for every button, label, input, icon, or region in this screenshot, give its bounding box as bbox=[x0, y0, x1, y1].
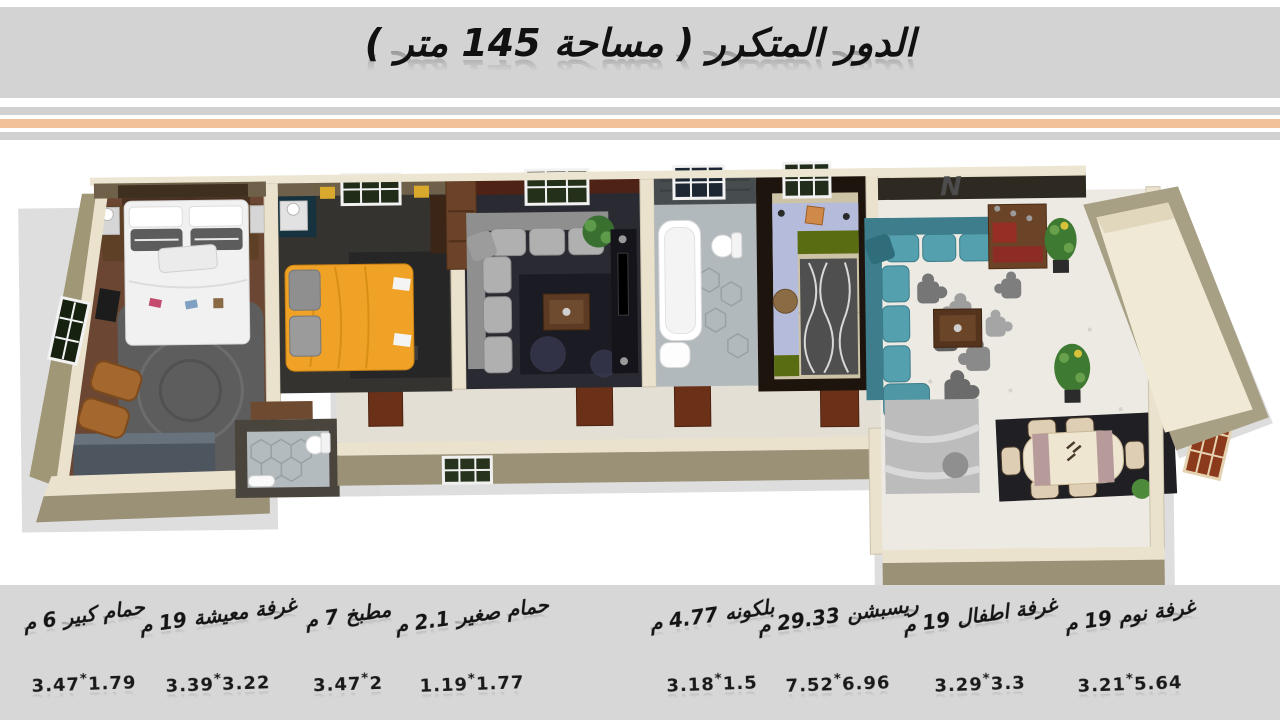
divider-stripe-peach bbox=[0, 119, 1280, 128]
divider-stripe-gray-top bbox=[0, 107, 1280, 115]
bathtub-icon bbox=[658, 220, 701, 341]
north-indicator: N bbox=[940, 172, 962, 202]
nightstand-right bbox=[250, 206, 264, 233]
green-counter bbox=[774, 355, 799, 376]
green-counter bbox=[797, 230, 858, 254]
counter bbox=[772, 203, 799, 355]
living-room bbox=[446, 177, 643, 389]
cutting-board bbox=[805, 206, 824, 225]
window-icon bbox=[784, 163, 830, 198]
legend-item: غرفة نوم 19 م 3.21*5.64 bbox=[1040, 585, 1220, 720]
dining-chair bbox=[1125, 441, 1145, 470]
room-dimensions: 3.21*5.64 bbox=[1040, 668, 1221, 698]
swirl-rug bbox=[885, 399, 980, 494]
kitchen bbox=[756, 170, 871, 391]
coffee-table bbox=[933, 309, 981, 348]
title-bar: الدور المتكرر ( مساحة 145 متر ) bbox=[0, 7, 1280, 98]
children-bedroom bbox=[278, 181, 453, 393]
wall-art-framed bbox=[414, 186, 429, 198]
bidet-icon bbox=[660, 342, 690, 367]
page-title: الدور المتكرر ( مساحة 145 متر ) bbox=[0, 21, 1280, 65]
wall-face-bottom-reception bbox=[883, 560, 1165, 585]
wall-living-bath bbox=[640, 179, 657, 387]
tv-console bbox=[610, 229, 638, 373]
tv-console-red bbox=[988, 204, 1047, 269]
window-icon bbox=[443, 457, 491, 484]
threshold bbox=[251, 401, 313, 420]
headboard-wall bbox=[118, 184, 248, 199]
lamp-icon bbox=[287, 203, 299, 215]
sink-icon bbox=[248, 475, 274, 486]
toilet-icon bbox=[712, 235, 734, 257]
floorplan-render: N bbox=[0, 135, 1280, 585]
room-name: حمام صغير 2.1 م bbox=[381, 591, 563, 640]
double-bed-white bbox=[122, 190, 252, 346]
main-bathroom bbox=[654, 172, 759, 387]
coffee-table bbox=[543, 294, 589, 331]
wall-art-framed bbox=[320, 187, 335, 199]
slide: الدور المتكرر ( مساحة 145 متر ) bbox=[0, 0, 1280, 720]
dining-chair bbox=[1001, 447, 1021, 476]
round-mat bbox=[773, 289, 797, 313]
room-dimensions: 1.19*1.77 bbox=[382, 668, 563, 698]
legend: حمام كبير 6 م 3.47*1.79 غرفة معيشة 19 م … bbox=[0, 585, 1280, 720]
room-name: غرفة نوم 19 م bbox=[1039, 591, 1221, 640]
wavy-rug bbox=[800, 258, 858, 375]
yellow-bed bbox=[285, 264, 414, 372]
legend-item: حمام صغير 2.1 م 1.19*1.77 bbox=[382, 585, 562, 720]
